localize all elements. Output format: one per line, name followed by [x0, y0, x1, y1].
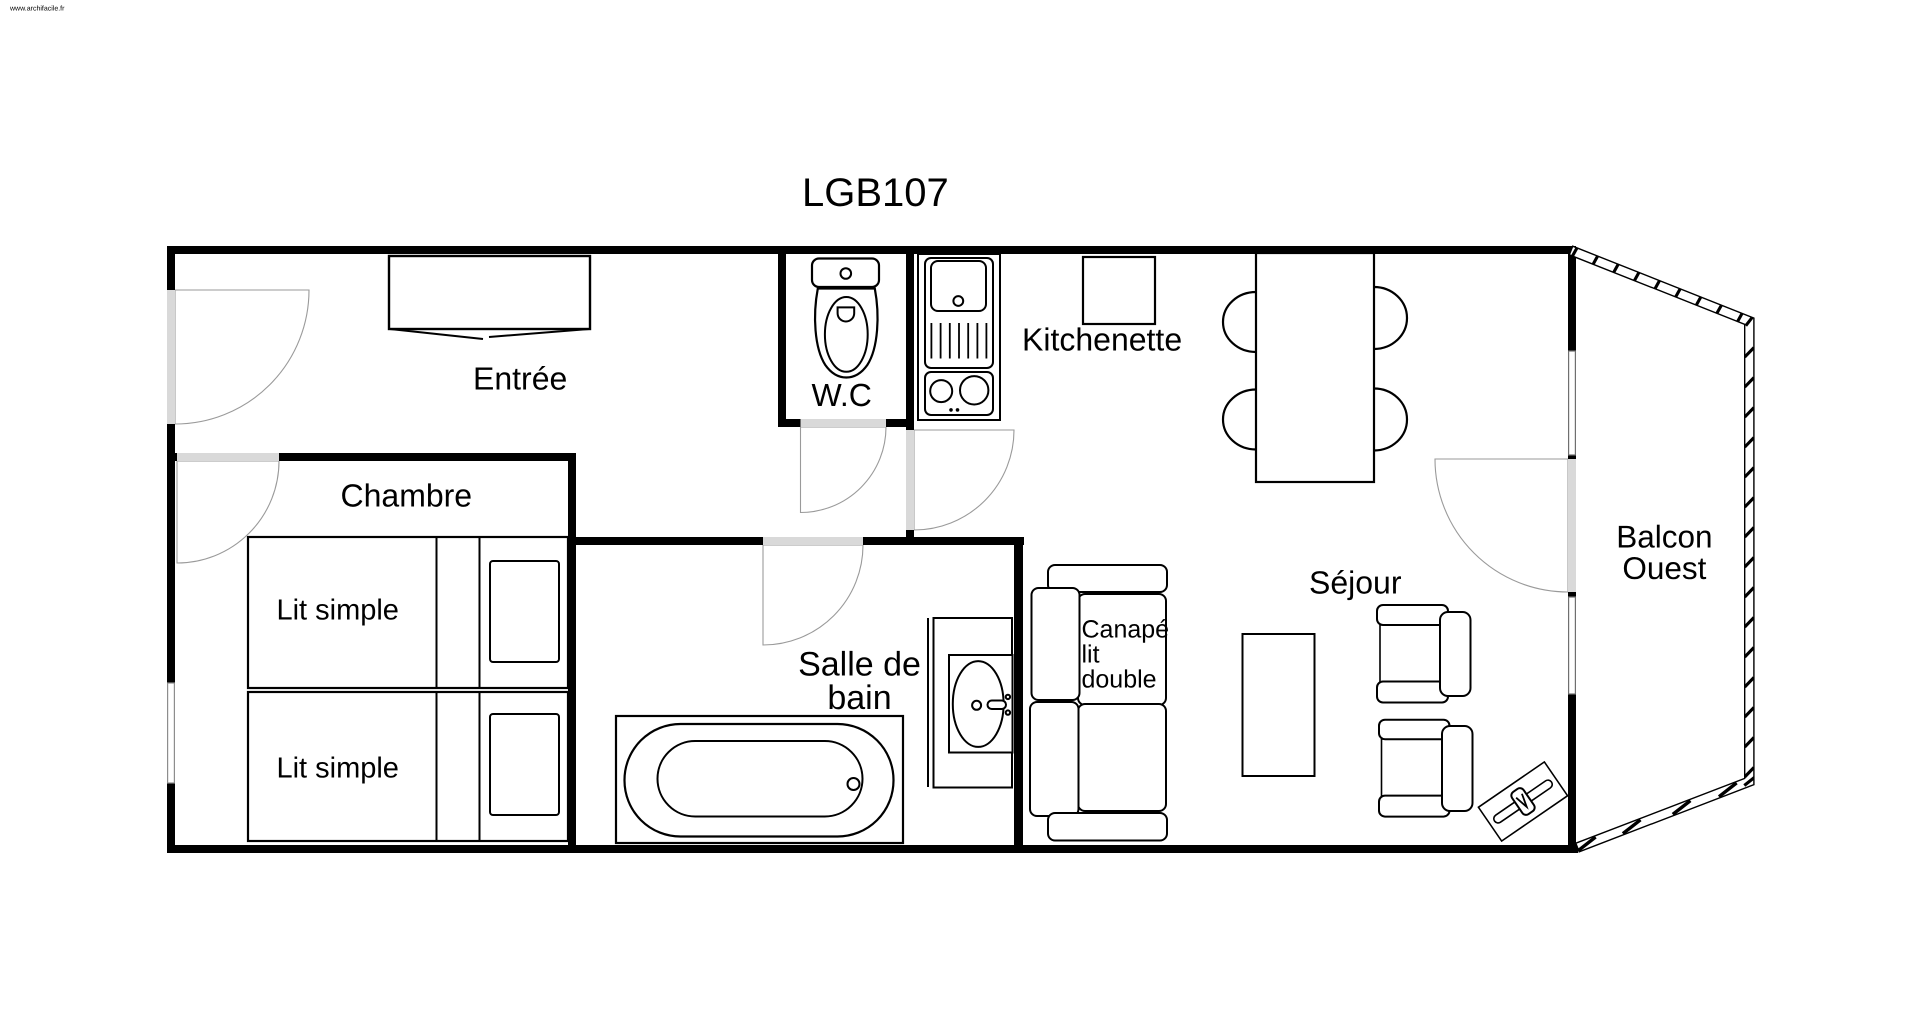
svg-text:W.C: W.C [811, 377, 871, 413]
svg-text:Séjour: Séjour [1309, 564, 1402, 600]
svg-text:double: double [1082, 666, 1157, 694]
svg-text:Canapé: Canapé [1082, 616, 1170, 644]
svg-text:Lit simple: Lit simple [276, 753, 399, 785]
svg-text:Lit simple: Lit simple [276, 595, 399, 627]
svg-text:Salle de: Salle de [798, 646, 921, 684]
svg-text:www.archifacile.fr: www.archifacile.fr [9, 5, 65, 13]
svg-text:Entrée: Entrée [473, 361, 567, 397]
svg-text:Chambre: Chambre [340, 478, 472, 514]
svg-text:lit: lit [1082, 641, 1100, 669]
svg-text:LGB107: LGB107 [802, 171, 949, 215]
svg-text:Kitchenette: Kitchenette [1022, 322, 1182, 358]
svg-text:Ouest: Ouest [1622, 550, 1706, 586]
svg-text:bain: bain [827, 679, 891, 717]
